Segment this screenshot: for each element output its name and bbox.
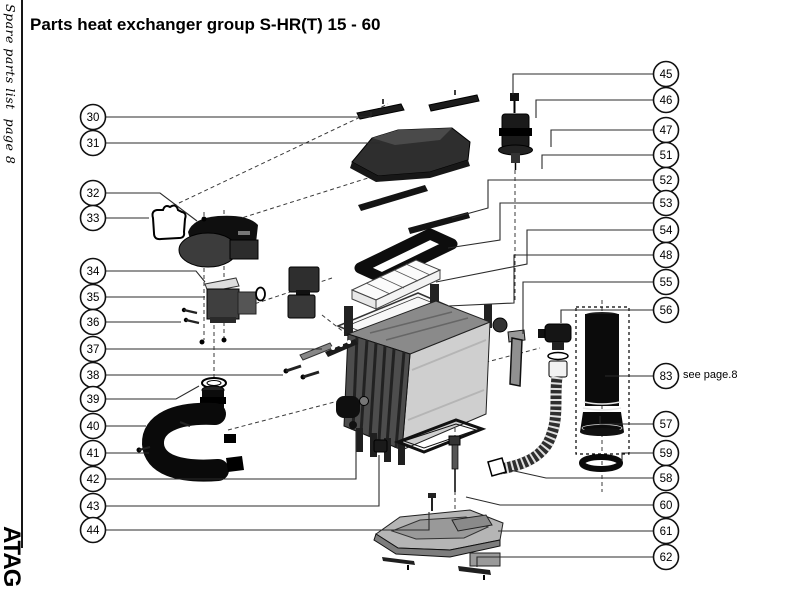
wall-bracket [508,330,525,386]
callout-number-45: 45 [660,69,673,81]
callout-45: 45 [513,62,679,96]
callout-60: 60 [466,493,679,518]
callout-leader-53 [448,203,653,248]
callout-41: 41 [81,441,150,466]
callout-61: 61 [498,519,679,544]
callout-number-31: 31 [87,138,100,150]
callout-38: 38 [81,363,284,388]
callout-number-51: 51 [660,150,673,162]
callout-number-54: 54 [660,225,673,237]
callout-leader-51 [542,155,653,169]
callout-number-52: 52 [660,175,673,187]
callout-leader-59 [622,453,653,461]
callout-number-58: 58 [660,473,673,485]
flue-tube-boxed [576,307,629,454]
top-cover [350,128,470,182]
callout-leader-52 [452,180,653,218]
venturi [205,278,256,323]
callout-number-53: 53 [660,198,673,210]
callout-leader-62 [477,557,653,567]
callout-number-47: 47 [660,125,673,137]
mounting-strips [357,90,479,119]
gas-valve [288,267,319,318]
siphon-top [538,324,571,377]
see-page-note: see page.8 [683,369,737,381]
callout-51: 51 [542,143,679,170]
callout-number-61: 61 [660,526,673,538]
callout-number-35: 35 [87,292,100,304]
callout-leader-47 [551,130,653,147]
callout-46: 46 [536,88,679,119]
callout-number-30: 30 [87,112,100,124]
callout-40: 40 [81,414,147,439]
callout-leader-30 [106,112,371,117]
callout-47: 47 [551,118,679,148]
callout-leader-44 [106,512,429,530]
flue-oval-gasket [582,457,620,469]
callout-59: 59 [622,441,679,466]
callout-30: 30 [81,105,372,130]
callout-number-33: 33 [87,213,100,225]
callout-number-42: 42 [87,474,100,486]
exploded-parts-diagram: 3031323334353637383940414243444546475152… [0,0,800,600]
callout-number-37: 37 [87,344,100,356]
callout-leader-58 [510,470,653,478]
callout-leader-48 [448,255,653,306]
callout-54: 54 [436,218,679,283]
callout-number-43: 43 [87,501,100,513]
o-ring [256,288,265,301]
callout-number-62: 62 [660,552,673,564]
callout-35: 35 [81,285,206,310]
fan-assembly [179,216,258,267]
callout-number-39: 39 [87,394,100,406]
callout-36: 36 [81,310,182,335]
callout-number-48: 48 [660,250,673,262]
callout-number-57: 57 [660,419,673,431]
sight-glass-bolts [284,366,320,380]
callout-53: 53 [448,191,679,249]
callout-leader-46 [536,100,653,118]
callout-number-55: 55 [660,277,673,289]
callout-number-34: 34 [87,266,100,278]
callout-leader-45 [513,74,653,95]
callout-number-41: 41 [87,448,100,460]
callout-number-83: 83 [660,371,673,383]
callout-56: 56 [561,298,679,324]
callout-31: 31 [81,131,381,156]
callout-leader-39 [106,386,199,399]
callout-34: 34 [81,259,206,284]
callout-number-32: 32 [87,188,100,200]
callout-number-56: 56 [660,305,673,317]
callout-number-59: 59 [660,448,673,460]
ignition-transformer [499,93,533,170]
callout-number-40: 40 [87,421,100,433]
callout-62: 62 [477,545,679,570]
drain-hose [488,377,557,476]
callout-number-36: 36 [87,317,100,329]
callout-number-44: 44 [87,525,100,537]
callout-number-38: 38 [87,370,100,382]
heat-exchanger-block [344,284,507,465]
callout-leader-60 [466,497,653,505]
spare-parts-page: Spare parts list page 8 ATAG Parts heat … [0,0,800,600]
callout-leader-34 [106,271,205,282]
callout-number-60: 60 [660,500,673,512]
callout-leader-54 [436,230,653,282]
callout-52: 52 [452,168,679,219]
fan-inlet-gasket [153,206,186,240]
condensate-tray [374,510,503,566]
callout-48: 48 [448,243,679,307]
callout-number-46: 46 [660,95,673,107]
seal-bars [358,185,470,234]
callout-33: 33 [81,206,150,231]
